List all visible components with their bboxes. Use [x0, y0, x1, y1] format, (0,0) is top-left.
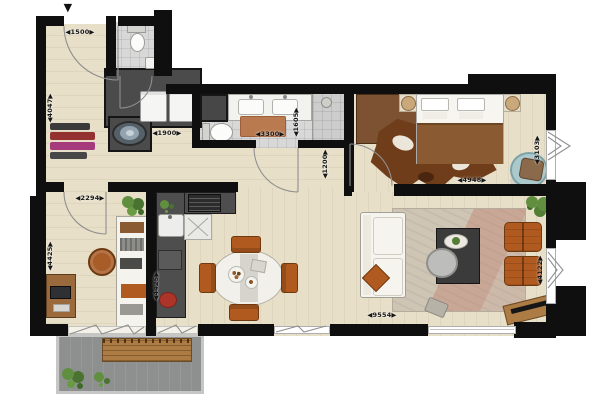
- dim-entry-width: ◀1500▶: [58, 28, 102, 37]
- dim-bathroom-depth: ◀1605▶: [291, 100, 301, 144]
- dim-utility-width: ◀1900▶: [147, 129, 187, 138]
- dim-hall-depth: ◀4047▶: [45, 86, 55, 130]
- dim-corridor-width: ◀1200▶: [320, 142, 330, 186]
- window-symbol: [548, 132, 570, 160]
- balcony-door-symbol: [158, 325, 196, 333]
- floor-plan-canvas: ▼ ◀1500▶ ◀4047▶ ◀1900▶ ◀3300▶ ◀1605▶ ◀12…: [0, 0, 600, 400]
- balcony-door-symbol: [70, 325, 144, 334]
- dim-bedroom-width: ◀4948▶: [450, 176, 494, 185]
- dim-living-depth: ◀4122▶: [535, 248, 545, 292]
- bedroom-door-arc: [350, 144, 392, 186]
- entrance-arrow-icon: ▼: [58, 1, 78, 13]
- window-symbol: [548, 137, 561, 155]
- dim-kitchen-run: ◀4425▶: [151, 264, 161, 308]
- window-symbol: [276, 326, 326, 332]
- dim-bedroom-depth: ◀3103▶: [532, 128, 542, 172]
- dim-bathroom-width: ◀3300▶: [249, 130, 291, 139]
- window-symbol: [548, 252, 563, 288]
- dim-study-depth: ◀4425▶: [45, 234, 55, 278]
- dim-living-width: ◀9554▶: [360, 311, 404, 320]
- wc-door-arc: [120, 76, 152, 108]
- bathroom-door-arc: [254, 148, 298, 192]
- dim-study-width: ◀2294▶: [69, 194, 111, 203]
